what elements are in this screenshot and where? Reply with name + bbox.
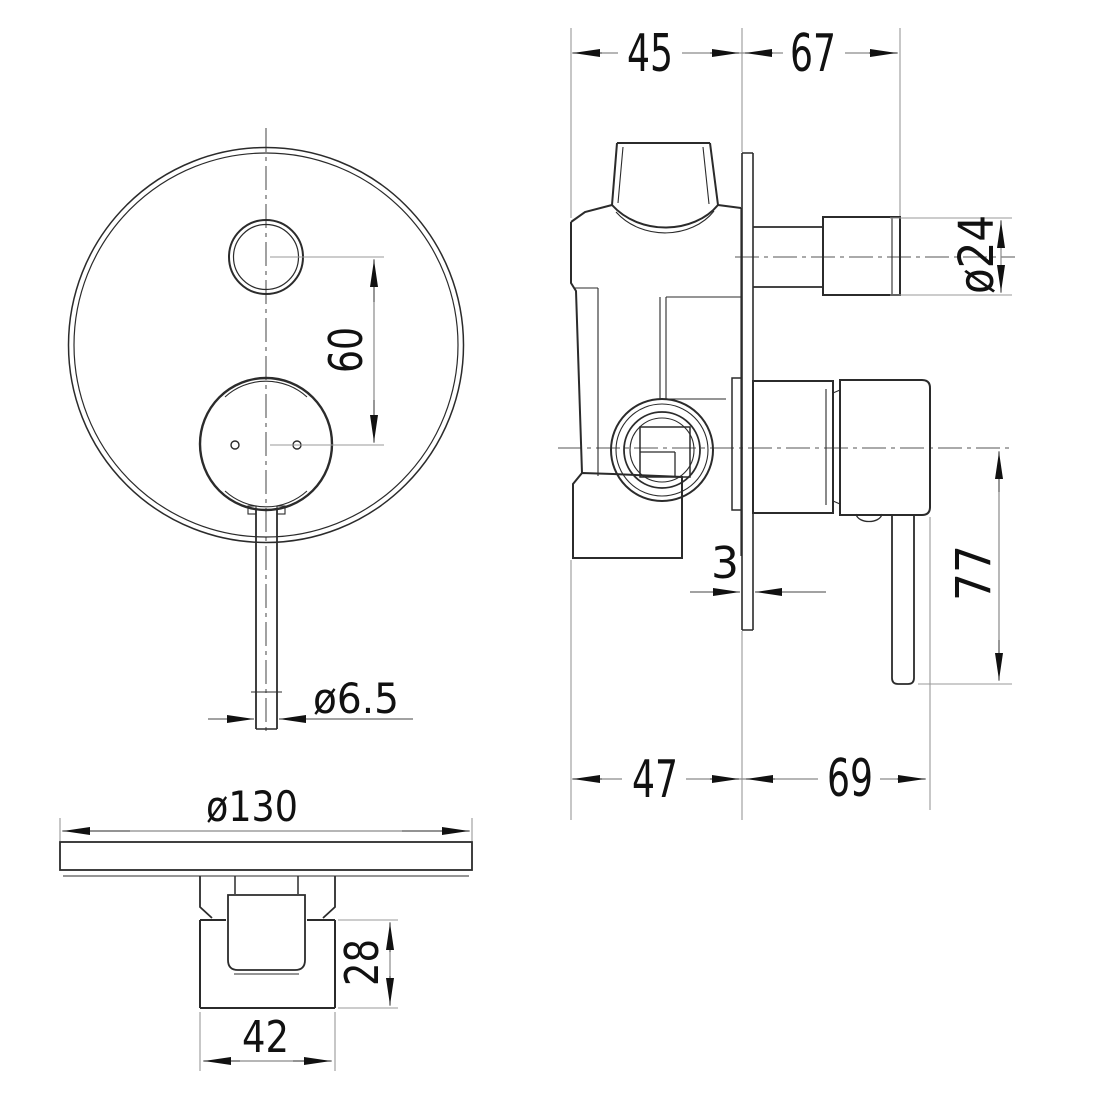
handle-escutcheon [753, 381, 833, 513]
dim-label-lever-length: 77 [946, 545, 1002, 601]
body-right-shoulder [718, 205, 741, 208]
dim-label-knob-diameter: ø24 [949, 215, 1005, 294]
handle-neck-lines [833, 390, 840, 504]
dimension-labels: 45 67 ø24 60 3 77 ø6.5 47 69 ø130 28 42 [206, 24, 1005, 1063]
body-left-shoulder [571, 205, 612, 222]
technical-drawing: 45 67 ø24 60 3 77 ø6.5 47 69 ø130 28 42 [0, 0, 1100, 1100]
bottom-view [60, 842, 472, 1008]
dim-label-handle-width: 42 [242, 1012, 289, 1063]
body-saddle-curve [612, 205, 718, 228]
side-lever [892, 515, 914, 684]
dim-label-handle-height: 28 [335, 939, 389, 986]
extension-lines [60, 28, 1012, 1071]
cartridge-square-step [640, 452, 675, 477]
body-top-socket [612, 143, 718, 205]
dim-label-plate-thickness: 3 [711, 538, 739, 589]
bottom-lever-hub [228, 895, 305, 970]
cartridge-flange-circle [611, 399, 713, 501]
knob-body [823, 217, 900, 295]
dim-label-wall-depth: 45 [627, 24, 673, 84]
side-view [558, 143, 1015, 684]
hub-pin-hole-left [231, 441, 239, 449]
body-saddle-curve-inner [616, 211, 714, 233]
bottom-escutcheon [200, 876, 335, 918]
wall-plate-edge [742, 153, 753, 630]
bottom-handle-block [200, 920, 335, 1008]
dim-label-hole-spacing: 60 [319, 327, 373, 373]
body-left-edge [571, 222, 582, 473]
dim-label-plate-diameter: ø130 [206, 782, 298, 831]
drawing-canvas: 45 67 ø24 60 3 77 ø6.5 47 69 ø130 28 42 [0, 0, 1100, 1100]
dim-label-handle-projection: 69 [827, 749, 873, 809]
bottom-neck [235, 876, 298, 894]
dim-label-knob-projection: 67 [790, 24, 836, 84]
plate-slab [60, 842, 472, 870]
dim-label-body-depth: 47 [632, 750, 678, 810]
body-top-socket-inner [618, 147, 709, 204]
front-view [69, 128, 464, 736]
dim-label-lever-tip-diameter: ø6.5 [313, 674, 399, 723]
body-lower-block [573, 473, 682, 558]
